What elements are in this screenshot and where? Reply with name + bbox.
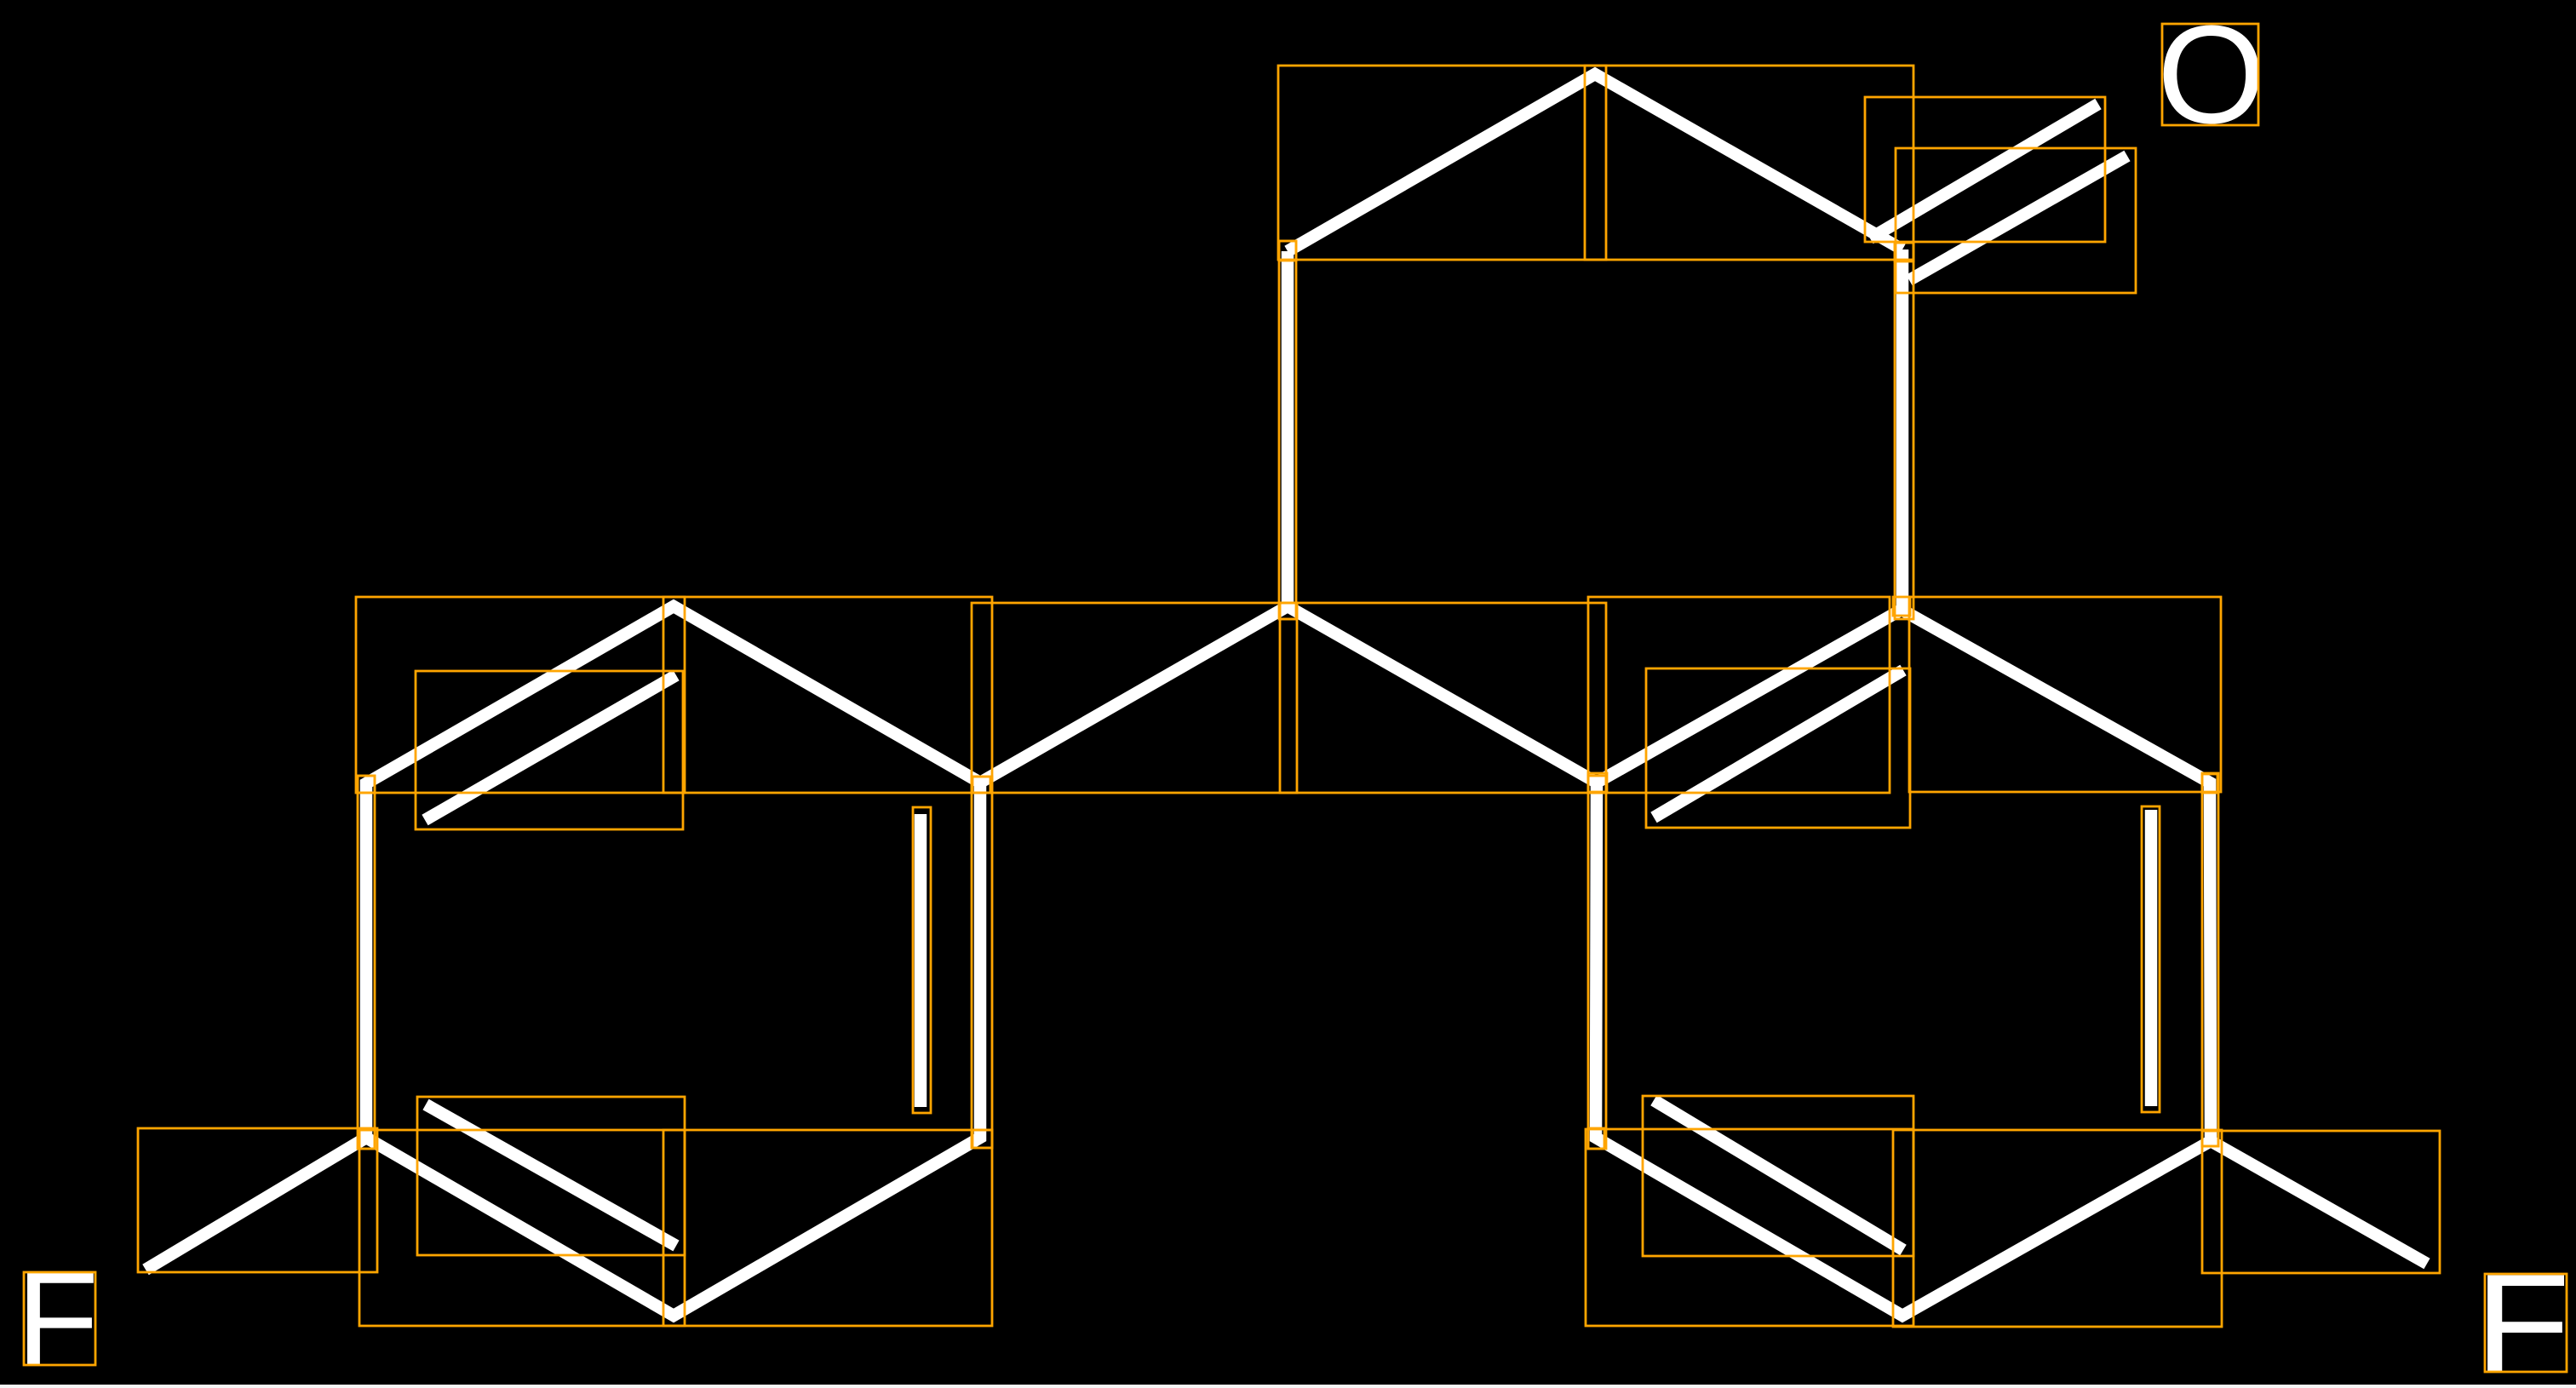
svg-text:F: F (2475, 1246, 2570, 1388)
svg-text:F: F (16, 1243, 99, 1388)
